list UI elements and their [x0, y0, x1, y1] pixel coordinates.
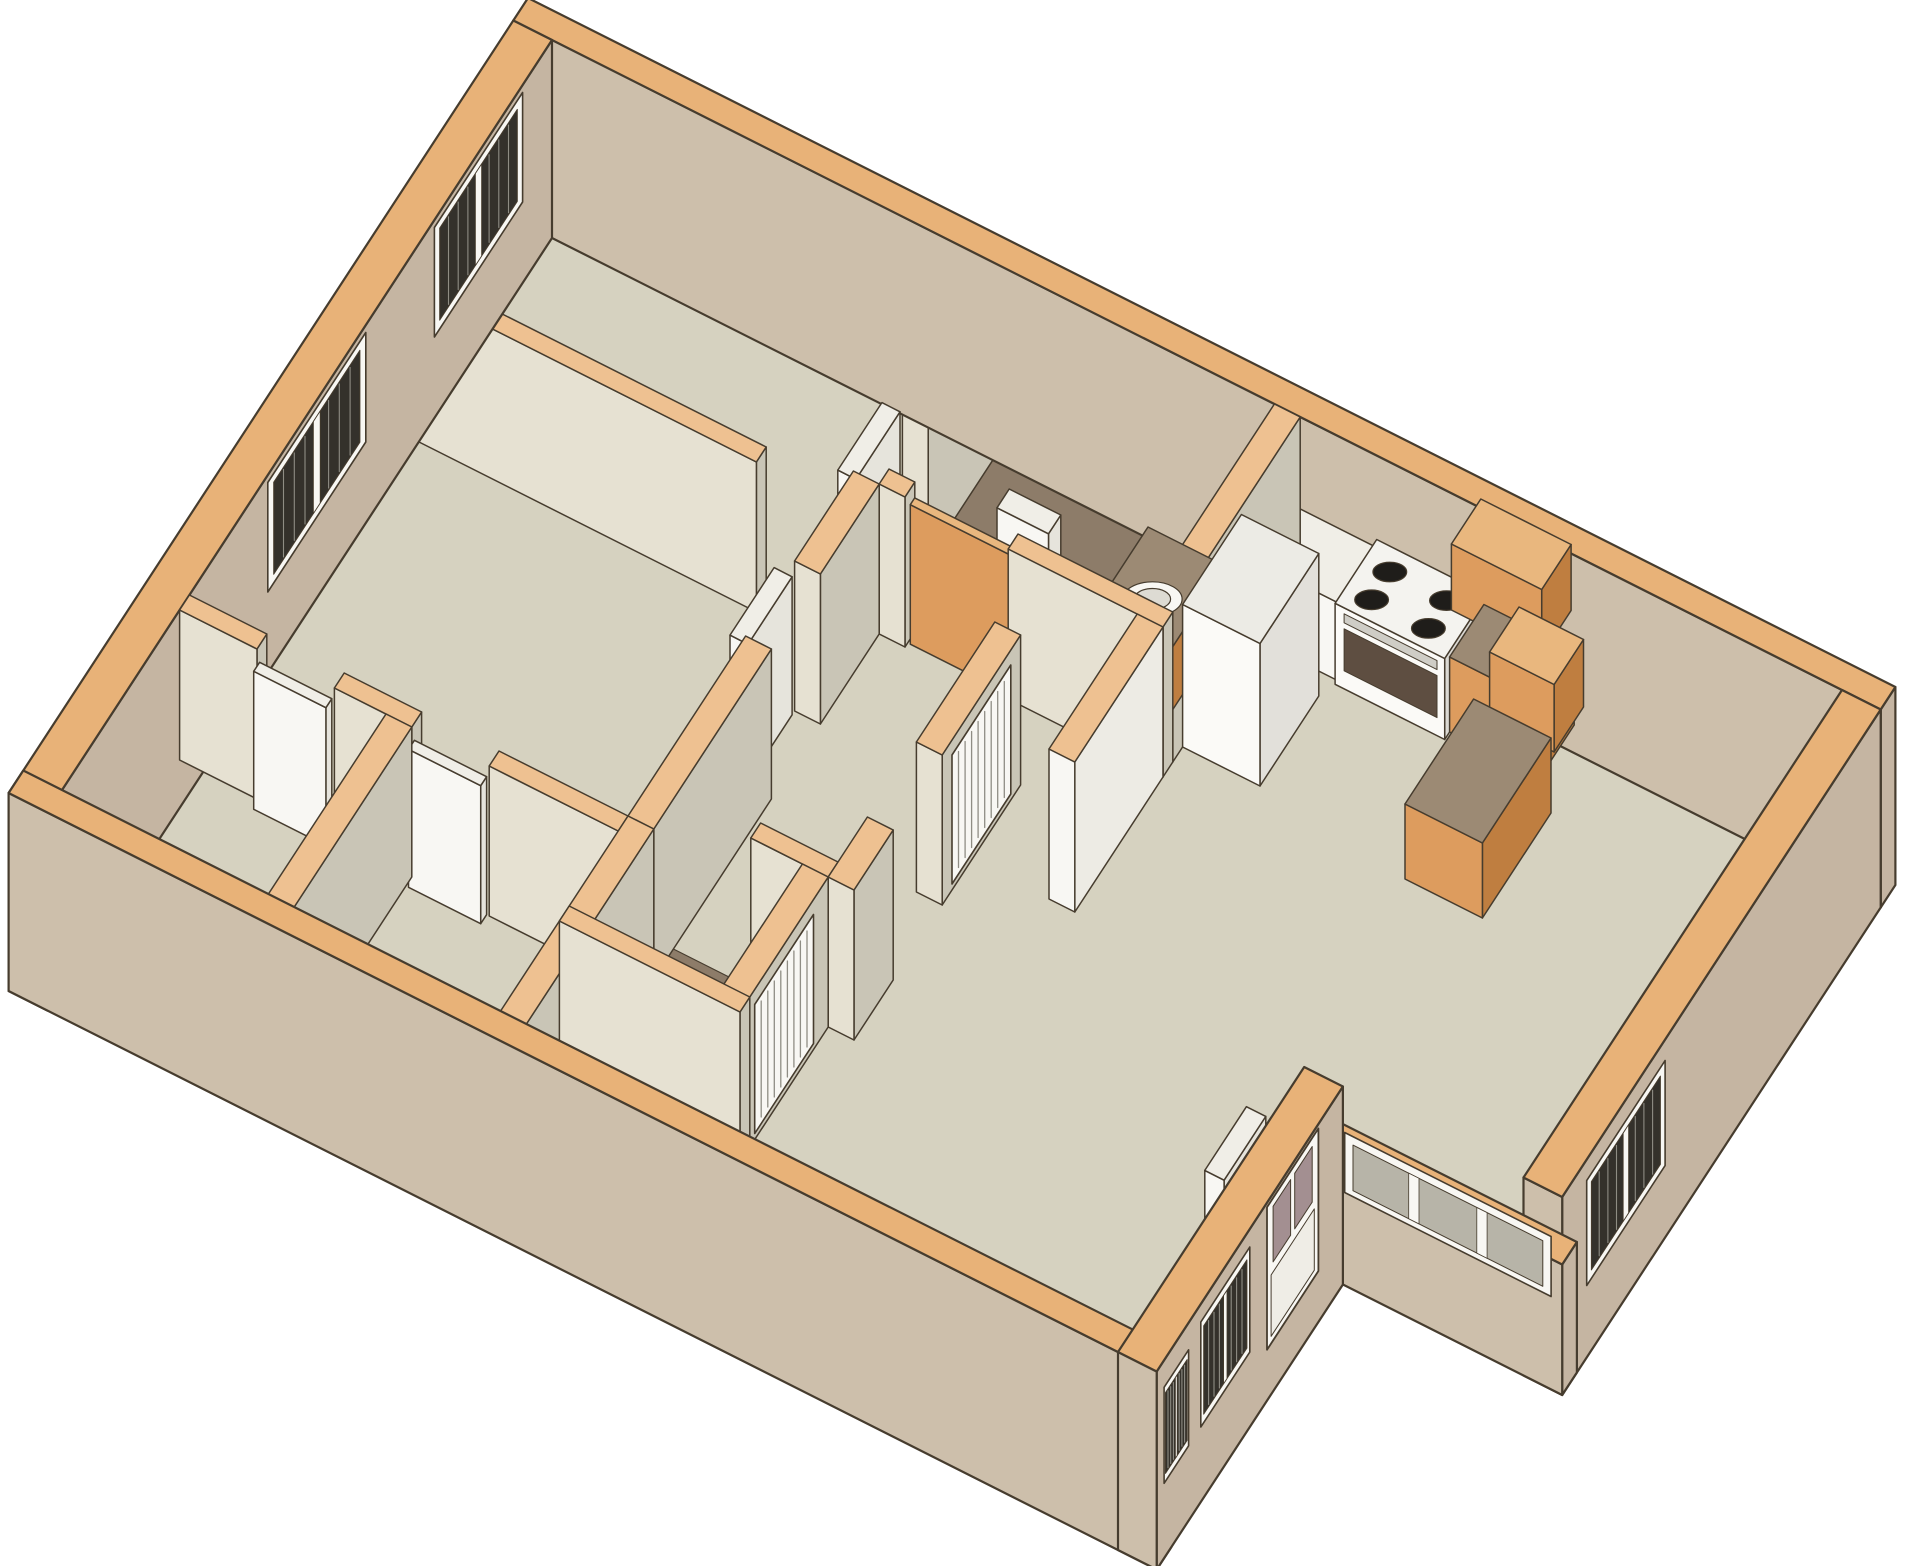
wall-hall-west-a-south-face	[795, 561, 821, 724]
stove-burner-4	[1412, 619, 1446, 639]
window-wing-1-mullion	[1224, 1290, 1227, 1383]
wall-bath1-south-a-south-face	[879, 484, 905, 647]
wall-north-exterior-east-face	[1881, 687, 1896, 908]
stove-burner-3	[1355, 590, 1389, 610]
wall-hall-east-a-south-face	[916, 742, 942, 905]
wall-wing-east-exterior-south-face	[1118, 1352, 1157, 1566]
window-dining-sill-mullion-1	[1409, 1173, 1419, 1224]
page: { "meta": { "title": "3D apartment floor…	[0, 0, 1920, 1566]
window-bedroom-a-mullion	[475, 164, 481, 266]
wall-bath1-south-b-east-face	[1163, 612, 1173, 777]
window-east-mullion	[1623, 1125, 1628, 1222]
closet-door-leaf-2-east-face	[481, 777, 487, 924]
wall-hall-east-b-south-face	[828, 877, 854, 1040]
stove-burner-1	[1373, 562, 1407, 582]
wall-white-panel-south-face	[1049, 749, 1075, 912]
window-wing-2-mullion	[1175, 1375, 1177, 1458]
window-dining-sill-mullion-2	[1477, 1208, 1487, 1259]
floor-plan-figure	[0, 0, 1920, 1566]
wall-dining-sill-east-face	[1562, 1242, 1577, 1395]
window-bedroom-b-mullion	[313, 411, 320, 514]
floor-plan-rendering	[0, 0, 1920, 1566]
